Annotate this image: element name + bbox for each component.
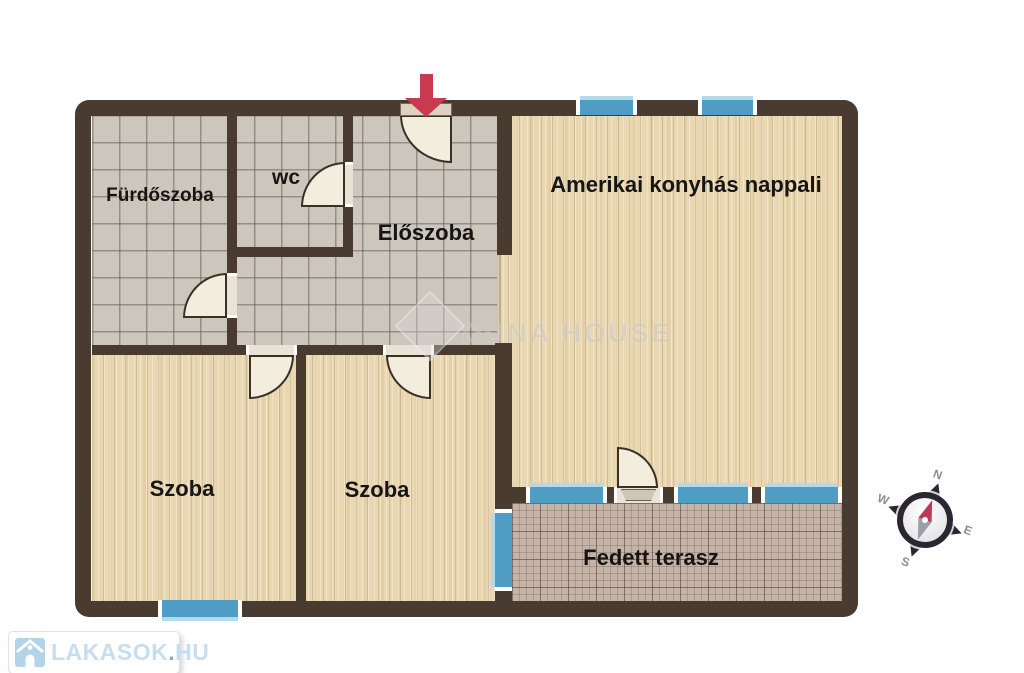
site-logo: LAKASOK.HU xyxy=(8,631,180,673)
wall-segment xyxy=(227,318,237,345)
wall-segment xyxy=(343,115,353,162)
wall-segment xyxy=(343,207,353,257)
room-label-hall: Előszoba xyxy=(378,220,475,246)
door-opening xyxy=(246,345,297,355)
window xyxy=(761,487,842,503)
window xyxy=(495,509,512,591)
compass-label-n: N xyxy=(931,467,944,483)
window xyxy=(526,487,607,503)
room-label-bedroom-1: Szoba xyxy=(150,476,215,502)
wall-segment xyxy=(294,345,386,355)
room-label-terrace: Fedett terasz xyxy=(583,545,719,571)
wall-segment xyxy=(227,257,237,273)
entrance-arrow-head-icon xyxy=(405,98,447,117)
door-opening xyxy=(227,273,237,318)
compass-label-s: S xyxy=(899,554,911,570)
window xyxy=(698,100,757,115)
window xyxy=(576,100,637,115)
wall-segment xyxy=(495,343,512,513)
window xyxy=(674,487,752,503)
window-outer-edge xyxy=(162,617,238,621)
room-label-living: Amerikai konyhás nappali xyxy=(550,172,821,198)
room-label-bathroom: Fürdőszoba xyxy=(106,185,214,207)
wall-segment xyxy=(227,115,237,257)
house-icon xyxy=(15,638,45,667)
site-logo-text: LAKASOK.HU xyxy=(51,639,209,666)
room-label-wc: wc xyxy=(272,166,300,190)
window xyxy=(158,600,242,617)
wall-segment xyxy=(92,345,249,355)
wall-segment xyxy=(296,355,306,601)
terrace-door-leaf xyxy=(621,489,656,501)
site-logo-tld: HU xyxy=(175,639,209,665)
room-label-bedroom-2: Szoba xyxy=(345,477,410,503)
compass-rose-icon: N E S W xyxy=(867,462,982,577)
site-logo-name: LAKASOK xyxy=(51,639,168,665)
wall-segment xyxy=(227,247,353,257)
compass-label-e: E xyxy=(962,522,974,538)
watermark-text: DUNA HOUSE xyxy=(462,318,673,349)
floorplan-canvas: DUNA HOUSE Fürdőszoba wc Elős xyxy=(0,0,1024,673)
entrance-arrow-icon xyxy=(420,74,433,99)
wall-segment xyxy=(497,115,512,255)
